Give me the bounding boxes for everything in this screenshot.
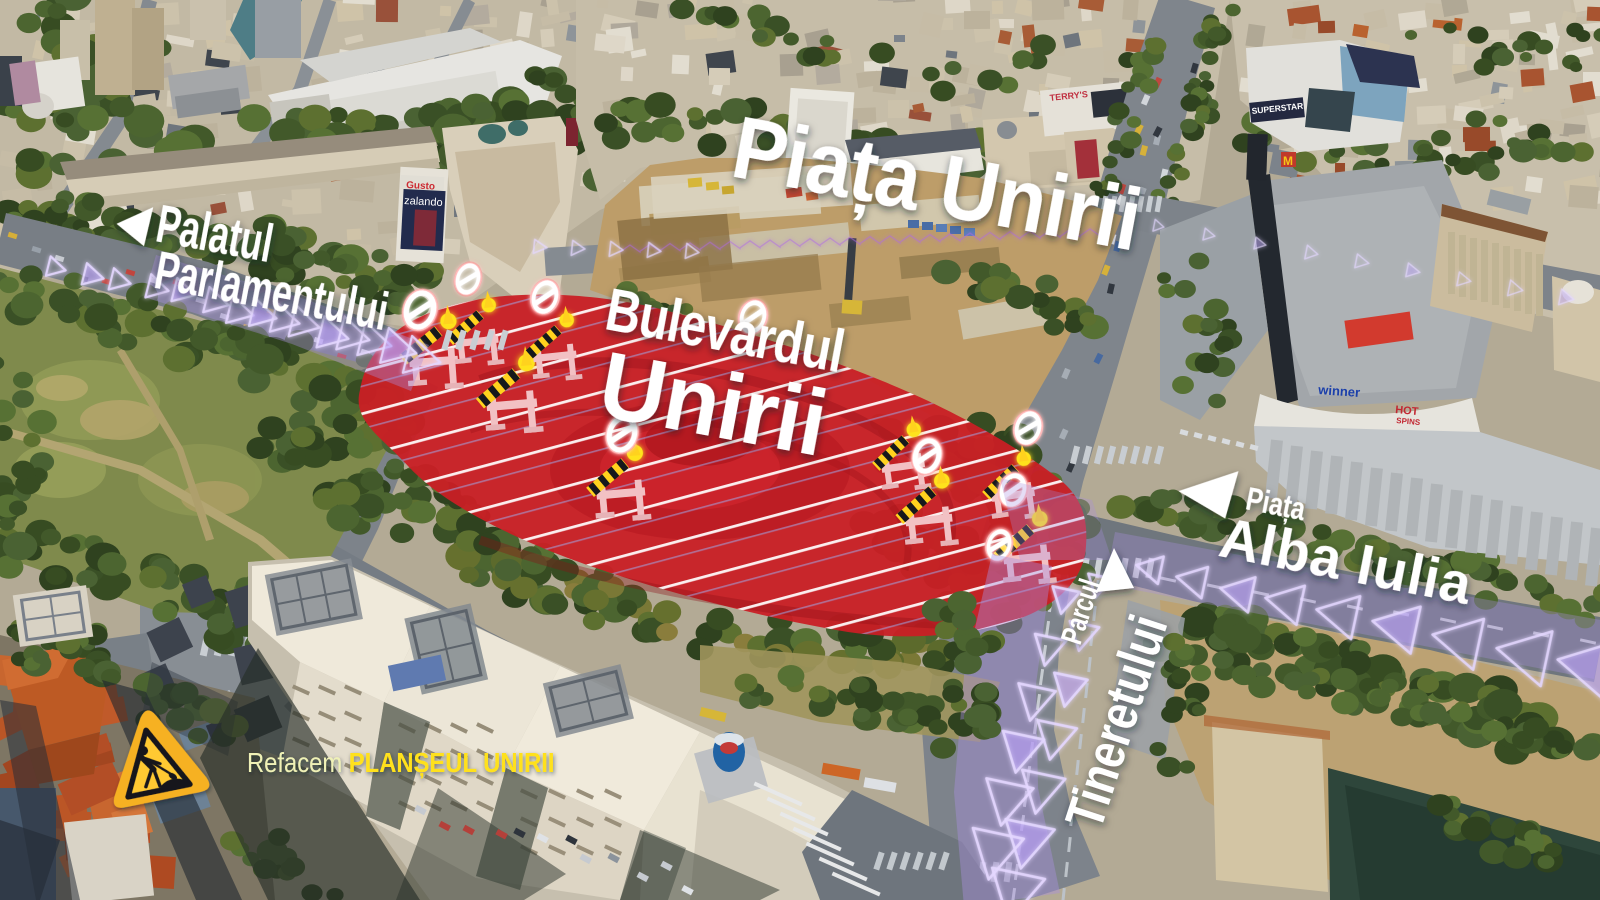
svg-text:Refacem PLANȘEUL UNIRII: Refacem PLANȘEUL UNIRII: [247, 746, 555, 778]
svg-text:Gusto: Gusto: [406, 180, 435, 192]
svg-text:M: M: [1283, 154, 1293, 168]
svg-text:winner: winner: [1317, 382, 1361, 400]
svg-text:zalando: zalando: [404, 195, 443, 209]
